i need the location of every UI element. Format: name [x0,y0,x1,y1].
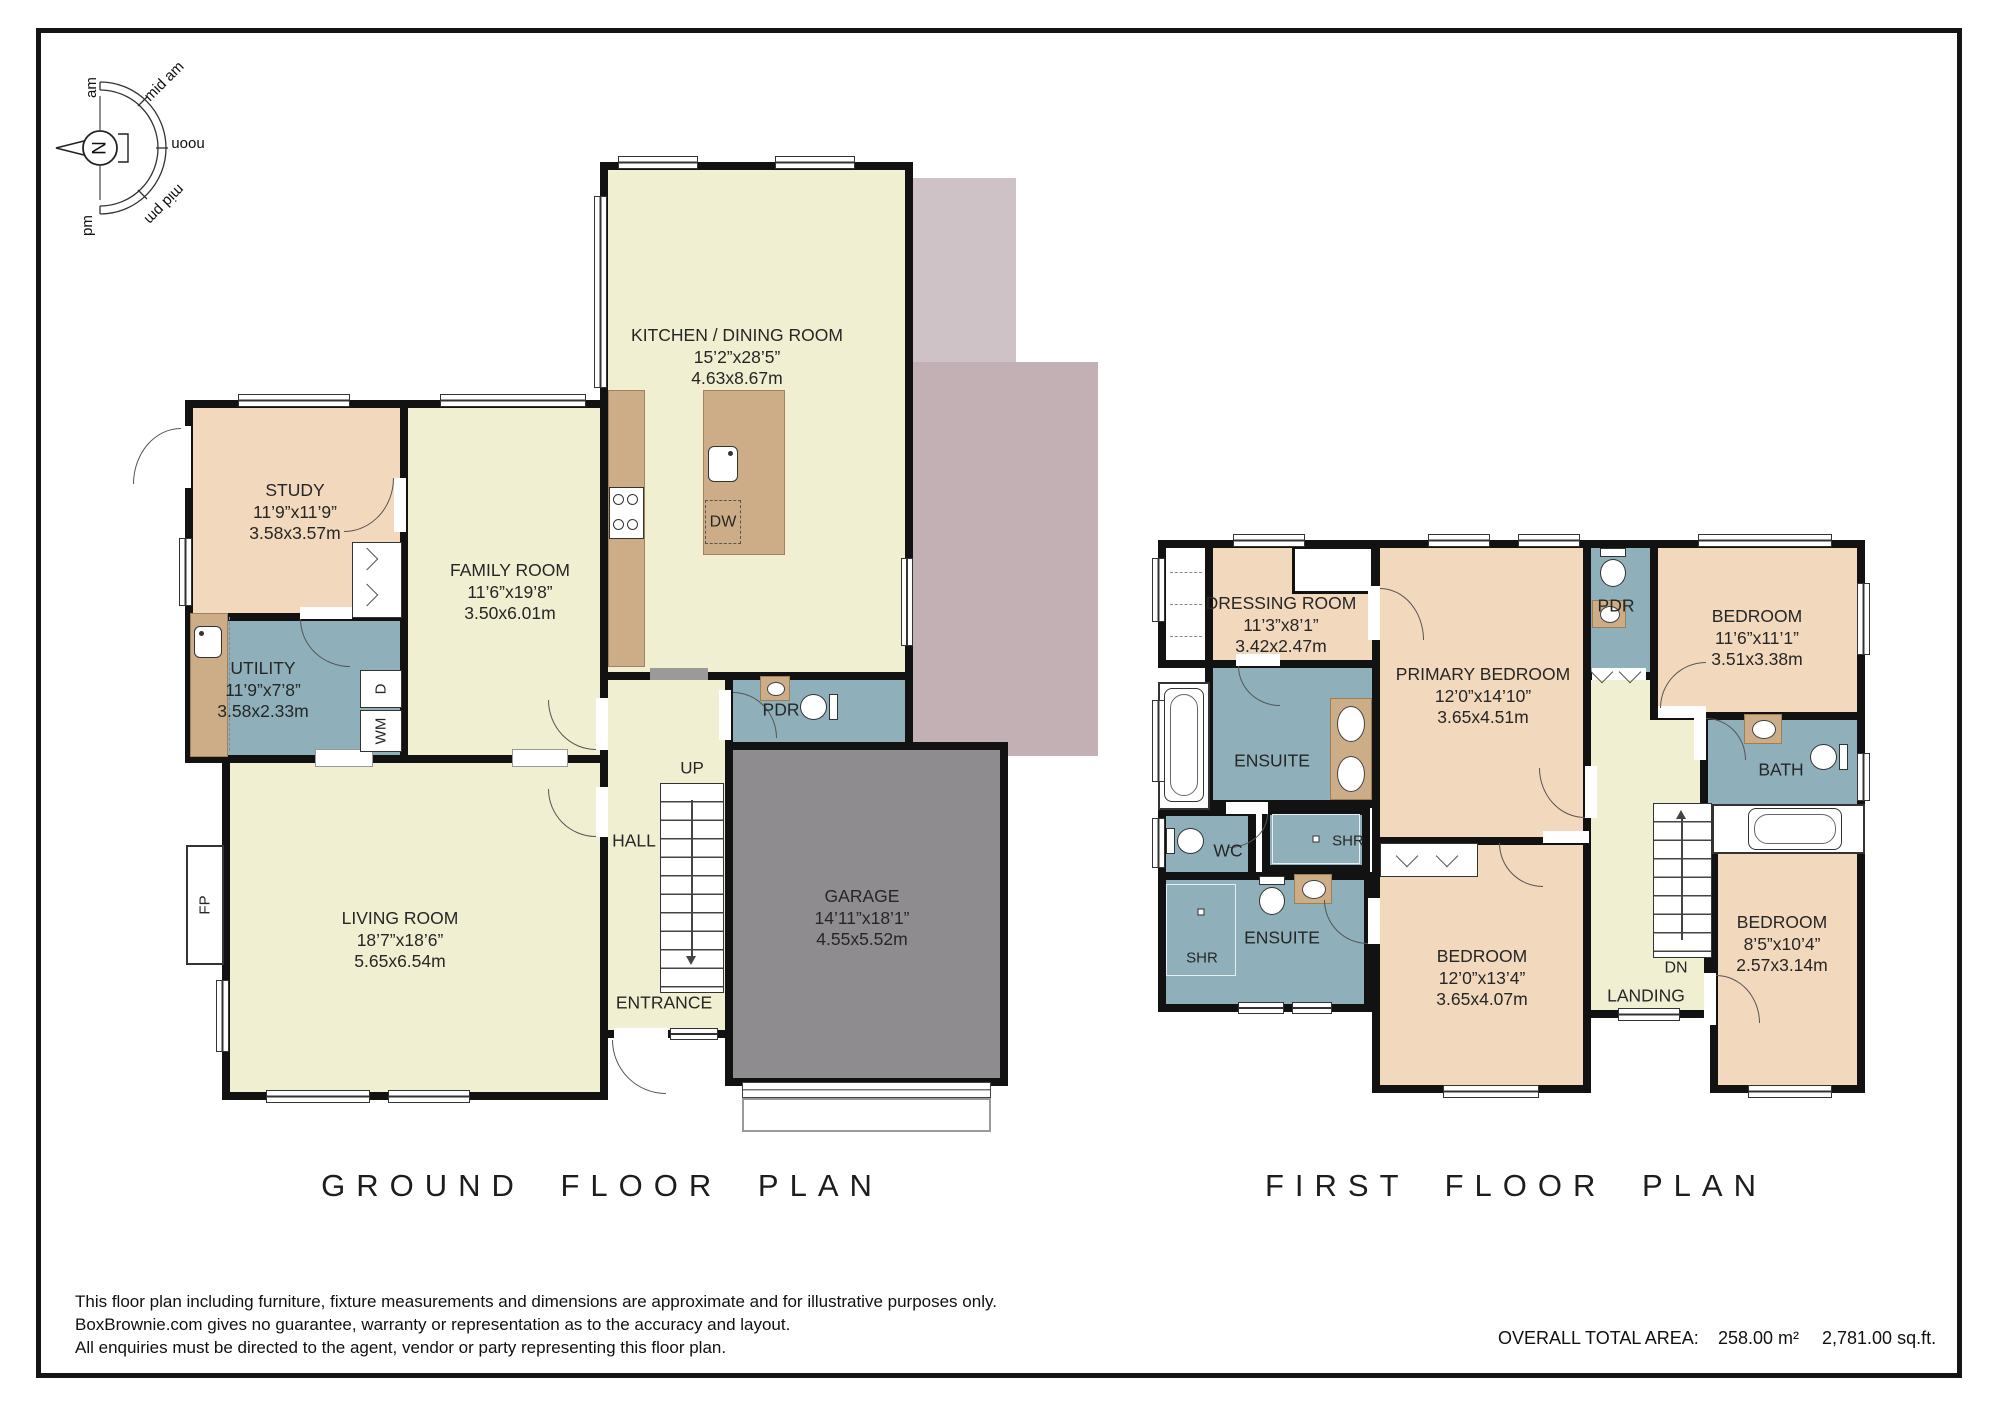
door-gap [1543,831,1589,843]
window [216,980,229,1052]
window [618,156,698,169]
door-gap [1585,766,1597,818]
stairs-down [1653,803,1712,958]
room-label-bedroom-bottom-right: BEDROOM8’5”x10’4”2.57x3.14m [1736,912,1827,977]
disclaimer-line-2: BoxBrownie.com gives no guarantee, warra… [75,1313,1175,1336]
sliding-door [901,558,913,646]
window [179,538,192,606]
room-label-landing: LANDING [1607,985,1685,1007]
room-label-ensuite-bottom: ENSUITE [1244,927,1320,949]
window [1428,534,1490,547]
room-label-shower-bottom: SHR [1186,947,1218,969]
window [1152,700,1165,782]
front-door-gap [614,1028,668,1040]
window [1152,818,1165,868]
door-gap [1694,716,1706,760]
vanity-sink-icon [1337,706,1365,742]
window [1698,534,1832,547]
compass-label-midpm: mid pm [141,181,188,228]
stairs-down-label: DN [1664,957,1687,979]
room-label-entrance: ENTRANCE [616,992,712,1014]
compass-label-am: am [83,77,100,98]
dryer-label: D [370,684,392,695]
kitchen-sink-icon [708,446,738,482]
utility-sink-icon [194,626,222,658]
dressing-closet-nook [1292,546,1374,594]
door-gap [1368,898,1380,944]
disclaimer-line-3: All enquiries must be directed to the ag… [75,1336,1175,1359]
room-label-family: FAMILY ROOM11’6”x19’8”3.50x6.01m [450,560,570,625]
total-area-metric: 258.00 m² [1718,1328,1799,1349]
total-area-label: OVERALL TOTAL AREA: [1498,1328,1699,1349]
study-closet [352,542,402,618]
ensuite-bottom-toilet-icon [1256,876,1288,916]
compass-label-midam: mid am [141,58,188,105]
powder-toilet-icon [798,692,838,722]
first-floor-title: FIRST FLOOR PLAN [1265,1168,1767,1204]
room-label-powder-first: PDR [1598,595,1635,617]
stove-icon [609,487,644,539]
room-label-ensuite-top: ENSUITE [1234,750,1310,772]
room-label-utility: UTILITY11’9”x7’8”3.58x2.33m [217,658,308,723]
powder-sink-icon [760,676,790,701]
room-label-shower-top: SHR [1332,830,1364,852]
ensuite-bathtub-icon [1164,688,1204,802]
bathtub-icon [1748,808,1842,850]
room-label-kitchen: KITCHEN / DINING ROOM15’2”x28’5”4.63x8.6… [631,325,843,390]
window [1292,1002,1332,1014]
room-label-powder-ground: PDR [763,699,800,721]
kitchen-hall-threshold [650,668,708,680]
wc-toilet-icon [1166,826,1204,856]
door-gap [394,478,406,532]
door-gap [596,698,608,750]
compass-rose: N am mid am noon mid pm pm [52,40,237,240]
driveway-apron [742,1098,991,1132]
room-label-study: STUDY11’9”x11’9”3.58x3.57m [249,480,340,545]
door-gap [1368,586,1380,640]
washing-machine-label: WM [370,718,392,745]
window [1233,534,1305,547]
room-label-dressing: DRESSING ROOM11’3”x8’1”3.42x2.47m [1206,593,1357,658]
window [775,156,855,169]
patio-lower [913,362,1098,756]
window [670,1028,718,1040]
room-label-living: LIVING ROOM18’7”x18’6”5.65x6.54m [342,908,459,973]
dishwasher-label: DW [710,511,737,533]
bedroom-closet [1380,843,1478,877]
living-family-opening-2 [512,749,568,767]
window [1152,558,1165,622]
vanity-sink-icon [1337,756,1365,792]
fireplace-label: FP [194,895,216,914]
garage-door [742,1082,991,1098]
room-label-primary: PRIMARY BEDROOM12’0”x14’10”3.65x4.51m [1396,664,1570,729]
window [1443,1085,1539,1098]
ground-floor-title: GROUND FLOOR PLAN [321,1168,883,1204]
door-gap [300,607,352,619]
room-label-wc: WC [1213,840,1242,862]
door-gap [1704,973,1716,1025]
window [1238,1002,1284,1014]
room-label-hall: HALL [612,830,656,852]
compass-north-label: N [90,141,111,155]
floor-plan-page: N am mid am noon mid pm pm DW [0,0,2000,1414]
patio-upper [913,178,1016,374]
door-gap [596,787,608,837]
room-label-bath: BATH [1758,759,1803,781]
window [1748,1085,1832,1098]
window [1518,534,1580,547]
room-label-bedroom-bottom-center: BEDROOM12’0”x13’4”3.65x4.07m [1436,946,1527,1011]
window [1618,1008,1680,1021]
door-gap [719,690,731,740]
compass-label-noon: noon [171,136,204,153]
room-label-bedroom-top-right: BEDROOM11’6”x11’1”3.51x3.38m [1711,606,1802,671]
window [594,196,607,388]
window [266,1090,370,1103]
window [1857,753,1870,801]
door-gap [181,426,191,488]
compass-label-pm: pm [79,215,96,236]
room-label-garage: GARAGE14’11”x18’1”4.55x5.52m [814,886,909,951]
window [440,394,586,407]
stairs-up-label: UP [680,757,704,779]
window [1857,583,1870,655]
bath-toilet-icon [1808,742,1848,772]
door-gap [1226,802,1268,814]
disclaimer-text: This floor plan including furniture, fix… [75,1290,1175,1359]
window [388,1090,470,1103]
bath-sink-icon [1744,714,1782,744]
powder-first-toilet-icon [1596,548,1630,588]
total-area-imperial: 2,781.00 sq.ft. [1822,1328,1936,1349]
disclaimer-line-1: This floor plan including furniture, fix… [75,1290,1175,1313]
window [238,394,350,407]
